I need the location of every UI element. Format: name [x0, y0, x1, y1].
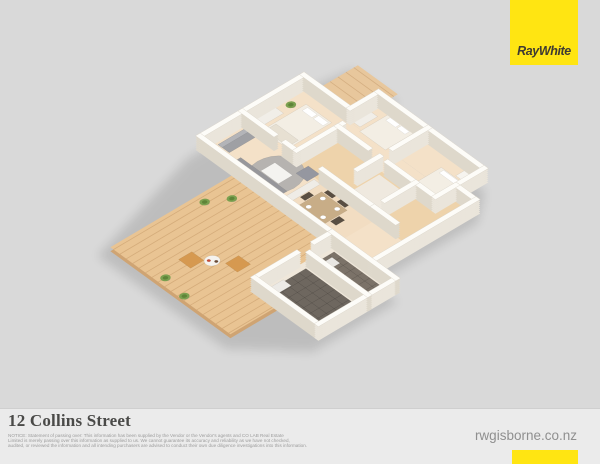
table-setting — [207, 259, 211, 261]
yellow-accent-bar — [512, 450, 578, 464]
plate — [320, 215, 326, 219]
plate — [306, 205, 312, 209]
disclaimer-line: audited, or reviewed the information and… — [8, 444, 388, 449]
footer: 12 Collins Street NOTICE: Statement of p… — [0, 408, 600, 464]
table-setting — [214, 260, 218, 263]
agency-website-url[interactable]: rwgisborne.co.nz — [475, 428, 577, 443]
plate — [320, 197, 326, 201]
marketing-image: RayWhite 12 Collins Street NOTICE: State… — [0, 0, 600, 464]
floor-plan-render — [0, 0, 600, 464]
raywhite-wordmark: RayWhite — [517, 44, 571, 58]
raywhite-logo: RayWhite — [510, 0, 578, 65]
plate — [334, 207, 340, 211]
legal-disclaimer: NOTICE: Statement of passing over: This … — [8, 434, 388, 449]
property-address-title: 12 Collins Street — [8, 411, 131, 431]
